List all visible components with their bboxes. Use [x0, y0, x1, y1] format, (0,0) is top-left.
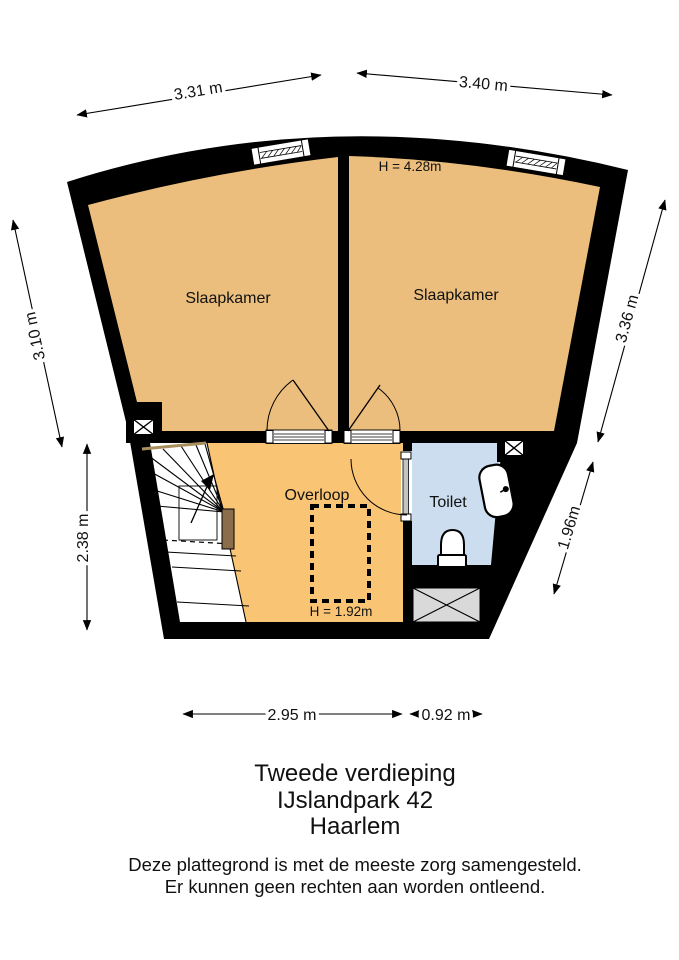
- title-address: IJslandpark 42: [277, 787, 433, 814]
- room-label-toilet: Toilet: [429, 494, 467, 511]
- floorplan-page: Slaapkamer Slaapkamer H = 4.28m Overloop…: [0, 0, 679, 960]
- room-label-bedroom-right: Slaapkamer: [413, 287, 499, 304]
- dimension-left-lower: 2.38 m: [75, 444, 92, 630]
- svg-text:2.95 m: 2.95 m: [268, 707, 317, 724]
- crossed-box-icon: [497, 436, 528, 462]
- gray-crossed-box-icon: [413, 588, 480, 622]
- height-label-landing: H = 1.92m: [310, 604, 373, 619]
- dimension-top-left: 3.31 m: [77, 75, 321, 115]
- height-label-bedroom-right: H = 4.28m: [379, 159, 442, 174]
- title-city: Haarlem: [310, 813, 401, 840]
- crossed-box-icon: [126, 402, 162, 443]
- dimension-bottom-main: 2.95 m: [183, 707, 402, 724]
- disclaimer-line-1: Deze plattegrond is met de meeste zorg s…: [128, 854, 582, 875]
- dimension-bottom-small: 0.92 m: [410, 707, 482, 724]
- svg-text:3.40 m: 3.40 m: [458, 74, 508, 95]
- toilet-icon: [438, 530, 466, 567]
- floorplan-svg: Slaapkamer Slaapkamer H = 4.28m Overloop…: [0, 0, 679, 960]
- room-label-landing: Overloop: [285, 487, 350, 504]
- dimension-right-lower: 1.96m: [554, 462, 593, 594]
- title-floor: Tweede verdieping: [254, 760, 455, 787]
- svg-text:1.96m: 1.96m: [555, 504, 584, 551]
- room-label-bedroom-left: Slaapkamer: [185, 290, 271, 307]
- disclaimer-line-2: Er kunnen geen rechten aan worden ontlee…: [165, 876, 546, 897]
- svg-text:0.92 m: 0.92 m: [422, 707, 471, 724]
- svg-text:2.38 m: 2.38 m: [75, 514, 92, 563]
- dimension-top-right: 3.40 m: [357, 73, 612, 95]
- svg-text:3.10 m: 3.10 m: [22, 310, 49, 361]
- svg-text:3.36 m: 3.36 m: [613, 293, 642, 345]
- svg-text:3.31 m: 3.31 m: [173, 79, 224, 104]
- dimension-left-upper: 3.10 m: [13, 220, 62, 447]
